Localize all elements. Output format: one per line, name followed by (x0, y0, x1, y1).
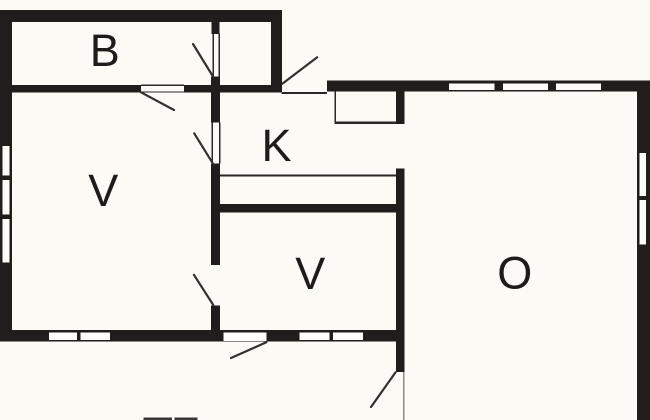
svg-text:B: B (90, 25, 120, 76)
svg-text:V: V (295, 248, 325, 299)
svg-text:K: K (262, 120, 292, 171)
svg-text:V: V (88, 165, 118, 216)
svg-text:O: O (497, 248, 532, 299)
